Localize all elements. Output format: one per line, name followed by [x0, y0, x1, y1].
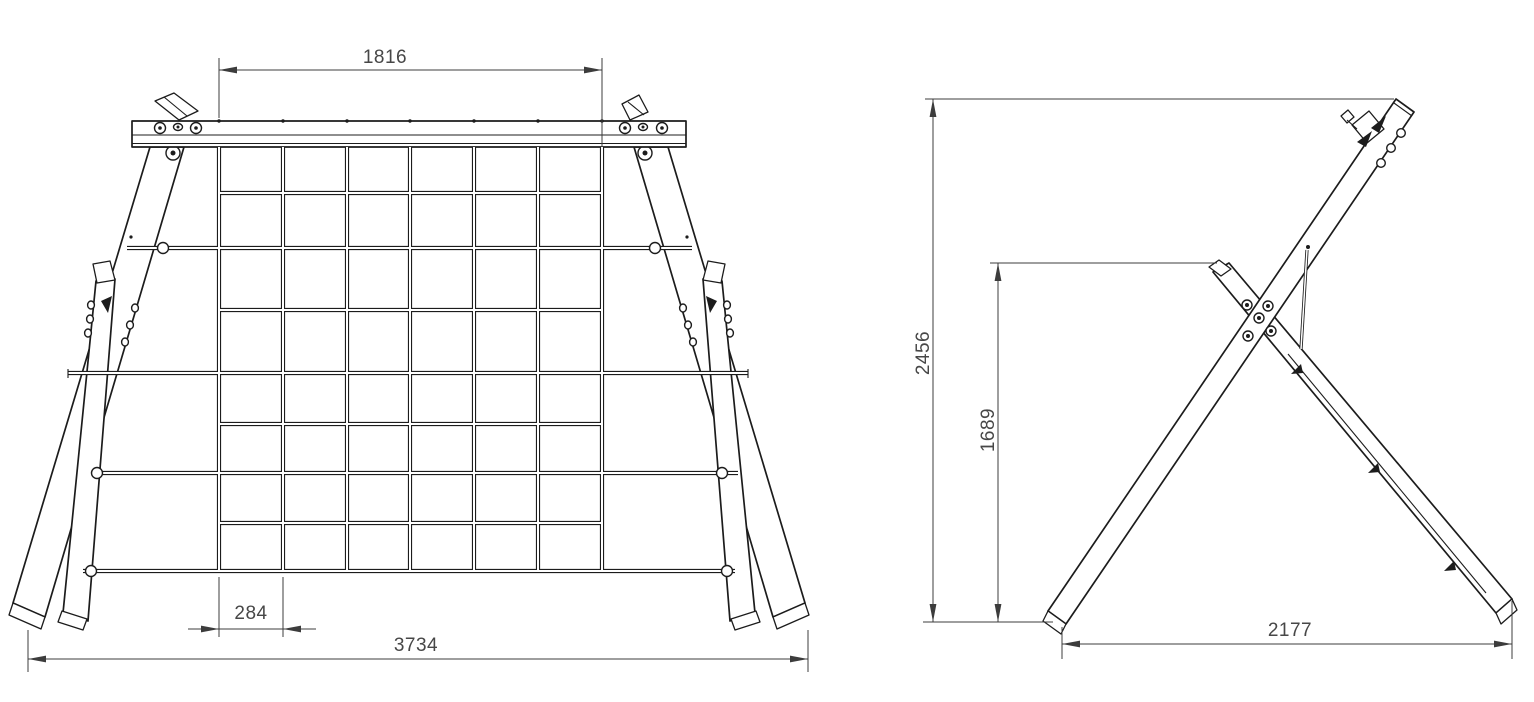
dim-overall-height: 2456: [913, 99, 1394, 622]
leg-rivet-dot: [1306, 245, 1310, 249]
top-beam: [132, 119, 686, 147]
climbing-frame-technical-drawing: 1816 284 3734: [0, 0, 1534, 702]
net-eyelet: [722, 566, 733, 577]
net-hook-mark: [1444, 561, 1456, 571]
beam-top-brackets: [155, 93, 648, 120]
net-eyelet: [717, 468, 728, 479]
rear-left-leg-top-cap: [93, 261, 115, 283]
dim-mesh-cell-value: 284: [234, 603, 267, 624]
beam-bolt-head: [1397, 129, 1406, 138]
left-pivot-bolt-center: [171, 151, 176, 156]
dim-rear-leg-height-value: 1689: [978, 408, 999, 452]
side-net-edge-rope: [1288, 354, 1486, 593]
dim-base-depth: 2177: [1062, 601, 1512, 659]
drawing-canvas: 1816 284 3734: [0, 0, 1534, 702]
dim-base-depth-value: 2177: [1268, 620, 1312, 641]
leg-rivet-dot: [685, 235, 688, 238]
climbing-net-grid: [68, 147, 748, 577]
net-eyelet: [92, 468, 103, 479]
dim-net-width-value: 1816: [363, 47, 407, 68]
front-view: 1816 284 3734: [9, 47, 809, 672]
rear-right-leg-top-cap: [703, 261, 725, 283]
side-view: 2456 1689 2177: [913, 99, 1517, 659]
right-pivot-bolt-center: [643, 151, 648, 156]
leg-rivet-dot: [129, 235, 132, 238]
dim-overall-height-value: 2456: [913, 331, 934, 375]
left-hook-bracket: [155, 93, 198, 120]
side-front-leg: [1043, 99, 1414, 634]
beam-bolt-head: [1377, 159, 1386, 168]
net-eyelet: [650, 243, 661, 254]
dim-overall-width: 3734: [28, 630, 808, 672]
net-eyelet: [86, 566, 97, 577]
net-eyelet: [158, 243, 169, 254]
dim-overall-width-value: 3734: [394, 635, 438, 656]
dim-mesh-cell: 284: [188, 577, 316, 637]
beam-bolt-head: [1387, 144, 1396, 153]
